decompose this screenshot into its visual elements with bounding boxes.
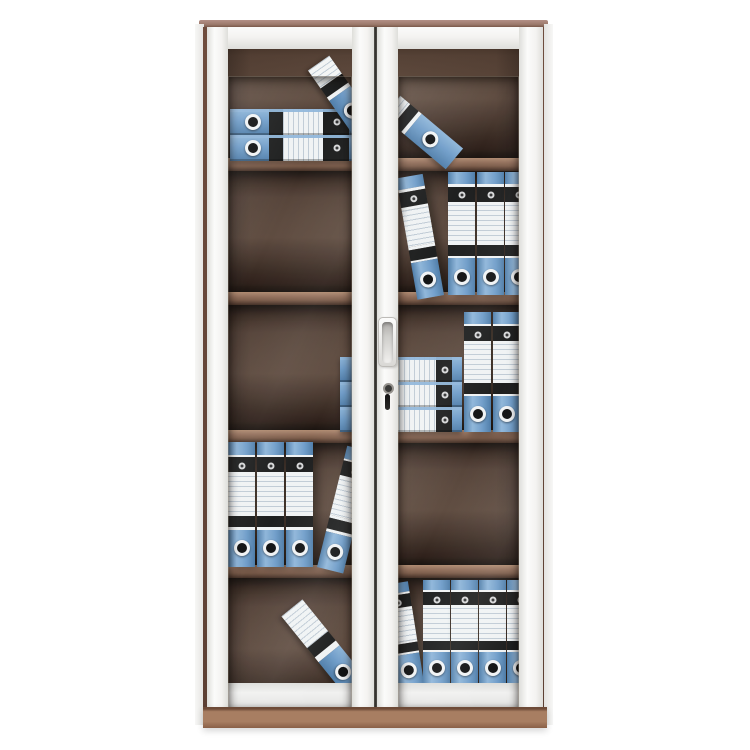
cabinet-side-right — [544, 24, 553, 725]
door-left — [207, 27, 374, 707]
door-handle — [378, 317, 397, 367]
handle-recess — [382, 322, 393, 363]
product-photo — [0, 0, 750, 750]
door-gap — [374, 27, 377, 707]
door-left-outer-stile — [207, 27, 228, 707]
keyhole-icon — [383, 383, 394, 394]
door-right-inner-stile — [377, 27, 398, 707]
door-right-outer-stile — [519, 27, 543, 707]
cabinet-plinth — [203, 707, 547, 728]
key-slot-icon — [385, 394, 390, 410]
door-left-top-rail — [207, 27, 374, 49]
door-right-glass — [398, 76, 519, 710]
door-left-inner-stile — [352, 27, 374, 707]
door-right — [377, 27, 543, 707]
door-left-glass — [228, 76, 352, 710]
